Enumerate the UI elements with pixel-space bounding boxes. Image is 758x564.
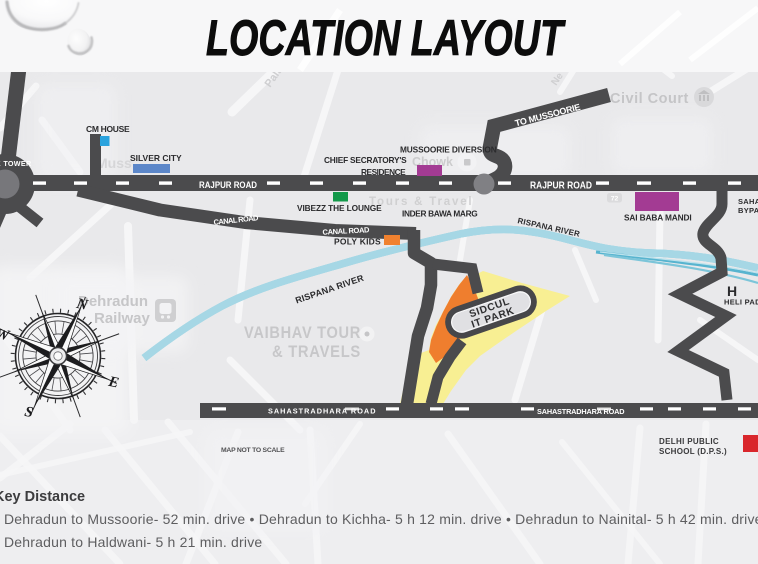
svg-text:& TRAVELS: & TRAVELS <box>272 343 361 361</box>
svg-text:Dehradun to Mussoorie- 52 min.: Dehradun to Mussoorie- 52 min. drive • D… <box>4 511 758 527</box>
svg-text:CHIEF SECRATORY'S: CHIEF SECRATORY'S <box>324 155 407 165</box>
svg-text:SAHASTRADHARA ROAD: SAHASTRADHARA ROAD <box>268 407 376 416</box>
svg-text:Dehradun: Dehradun <box>78 293 148 310</box>
svg-text:SILVER CITY: SILVER CITY <box>130 153 182 163</box>
svg-text:CLOCK TOWER: CLOCK TOWER <box>0 159 32 168</box>
svg-text:INDER BAWA MARG: INDER BAWA MARG <box>402 209 478 219</box>
svg-text:BYPASS: BYPASS <box>738 206 758 215</box>
svg-text:72: 72 <box>611 196 619 203</box>
svg-text:SCHOOL (D.P.S.): SCHOOL (D.P.S.) <box>659 447 727 456</box>
svg-text:POLY KIDS: POLY KIDS <box>334 237 381 247</box>
svg-text:Dehradun to Haldwani- 5 h 21 m: Dehradun to Haldwani- 5 h 21 min. drive <box>4 534 262 550</box>
svg-text:Muss: Muss <box>96 155 132 171</box>
svg-text:MAP NOT TO SCALE: MAP NOT TO SCALE <box>221 447 285 454</box>
svg-text:CM HOUSE: CM HOUSE <box>86 124 130 134</box>
svg-text:RESIDENCE: RESIDENCE <box>361 167 406 177</box>
svg-text:RAJPUR ROAD: RAJPUR ROAD <box>530 181 592 192</box>
svg-text:SAI BABA MANDI: SAI BABA MANDI <box>624 213 692 223</box>
svg-text:MUSSOORIE DIVERSION: MUSSOORIE DIVERSION <box>400 145 497 155</box>
svg-text:SAHAST: SAHAST <box>738 197 758 206</box>
svg-text:VAIBHAV TOUR: VAIBHAV TOUR <box>244 324 361 342</box>
svg-text:VIBEZZ THE LOUNGE: VIBEZZ THE LOUNGE <box>297 203 382 213</box>
svg-text:SAHASTRADHARA ROAD: SAHASTRADHARA ROAD <box>537 407 625 416</box>
svg-text:DELHI PUBLIC: DELHI PUBLIC <box>659 437 719 446</box>
svg-text:Civil Court: Civil Court <box>610 91 689 107</box>
svg-text:RAJPUR ROAD: RAJPUR ROAD <box>199 180 257 191</box>
svg-text:LOCATION LAYOUT: LOCATION LAYOUT <box>206 10 566 66</box>
svg-text:HELI PAD: HELI PAD <box>724 298 758 307</box>
svg-text:Railway: Railway <box>94 310 151 327</box>
svg-text:Key Distance: Key Distance <box>0 489 85 505</box>
